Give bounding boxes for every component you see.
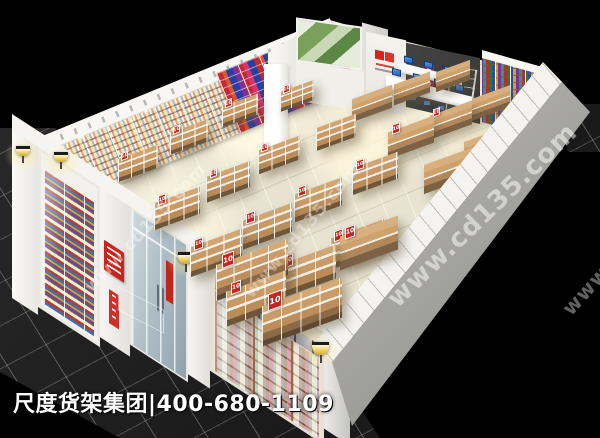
brand-logo-icon: [385, 52, 394, 63]
price-tag-sign: 10: [194, 237, 203, 251]
price-tag-sign: 10: [225, 98, 232, 109]
price-tag-sign: 10: [173, 124, 180, 135]
window-left-products: [44, 170, 94, 336]
price-tag-sign: 10: [121, 151, 128, 162]
price-tag-sign: 10: [298, 184, 306, 197]
store-render-scene: 10101010101010101010101010101010101010: [0, 0, 600, 438]
price-tag-sign: 10: [246, 210, 255, 224]
price-tag-sign: 10: [261, 142, 268, 153]
price-tag-sign: 10: [283, 84, 290, 95]
pos-screen: [404, 56, 413, 65]
screen-glint: [424, 101, 430, 105]
price-tag-sign: 10: [268, 289, 282, 311]
brand-logo-icon: [375, 50, 384, 61]
price-tag-sign: 10: [433, 107, 440, 118]
price-tag-sign: 10: [345, 224, 355, 240]
price-tag-sign: 10: [222, 251, 234, 269]
price-tag-sign: 10: [231, 279, 241, 295]
watermark: www.cd135.com: [557, 158, 600, 320]
company-caption: 尺度货架集团|400-680-1109: [13, 386, 334, 418]
price-tag-sign: 10: [392, 122, 400, 135]
pos-screen: [424, 61, 433, 70]
price-tag-sign: 10: [210, 168, 217, 179]
